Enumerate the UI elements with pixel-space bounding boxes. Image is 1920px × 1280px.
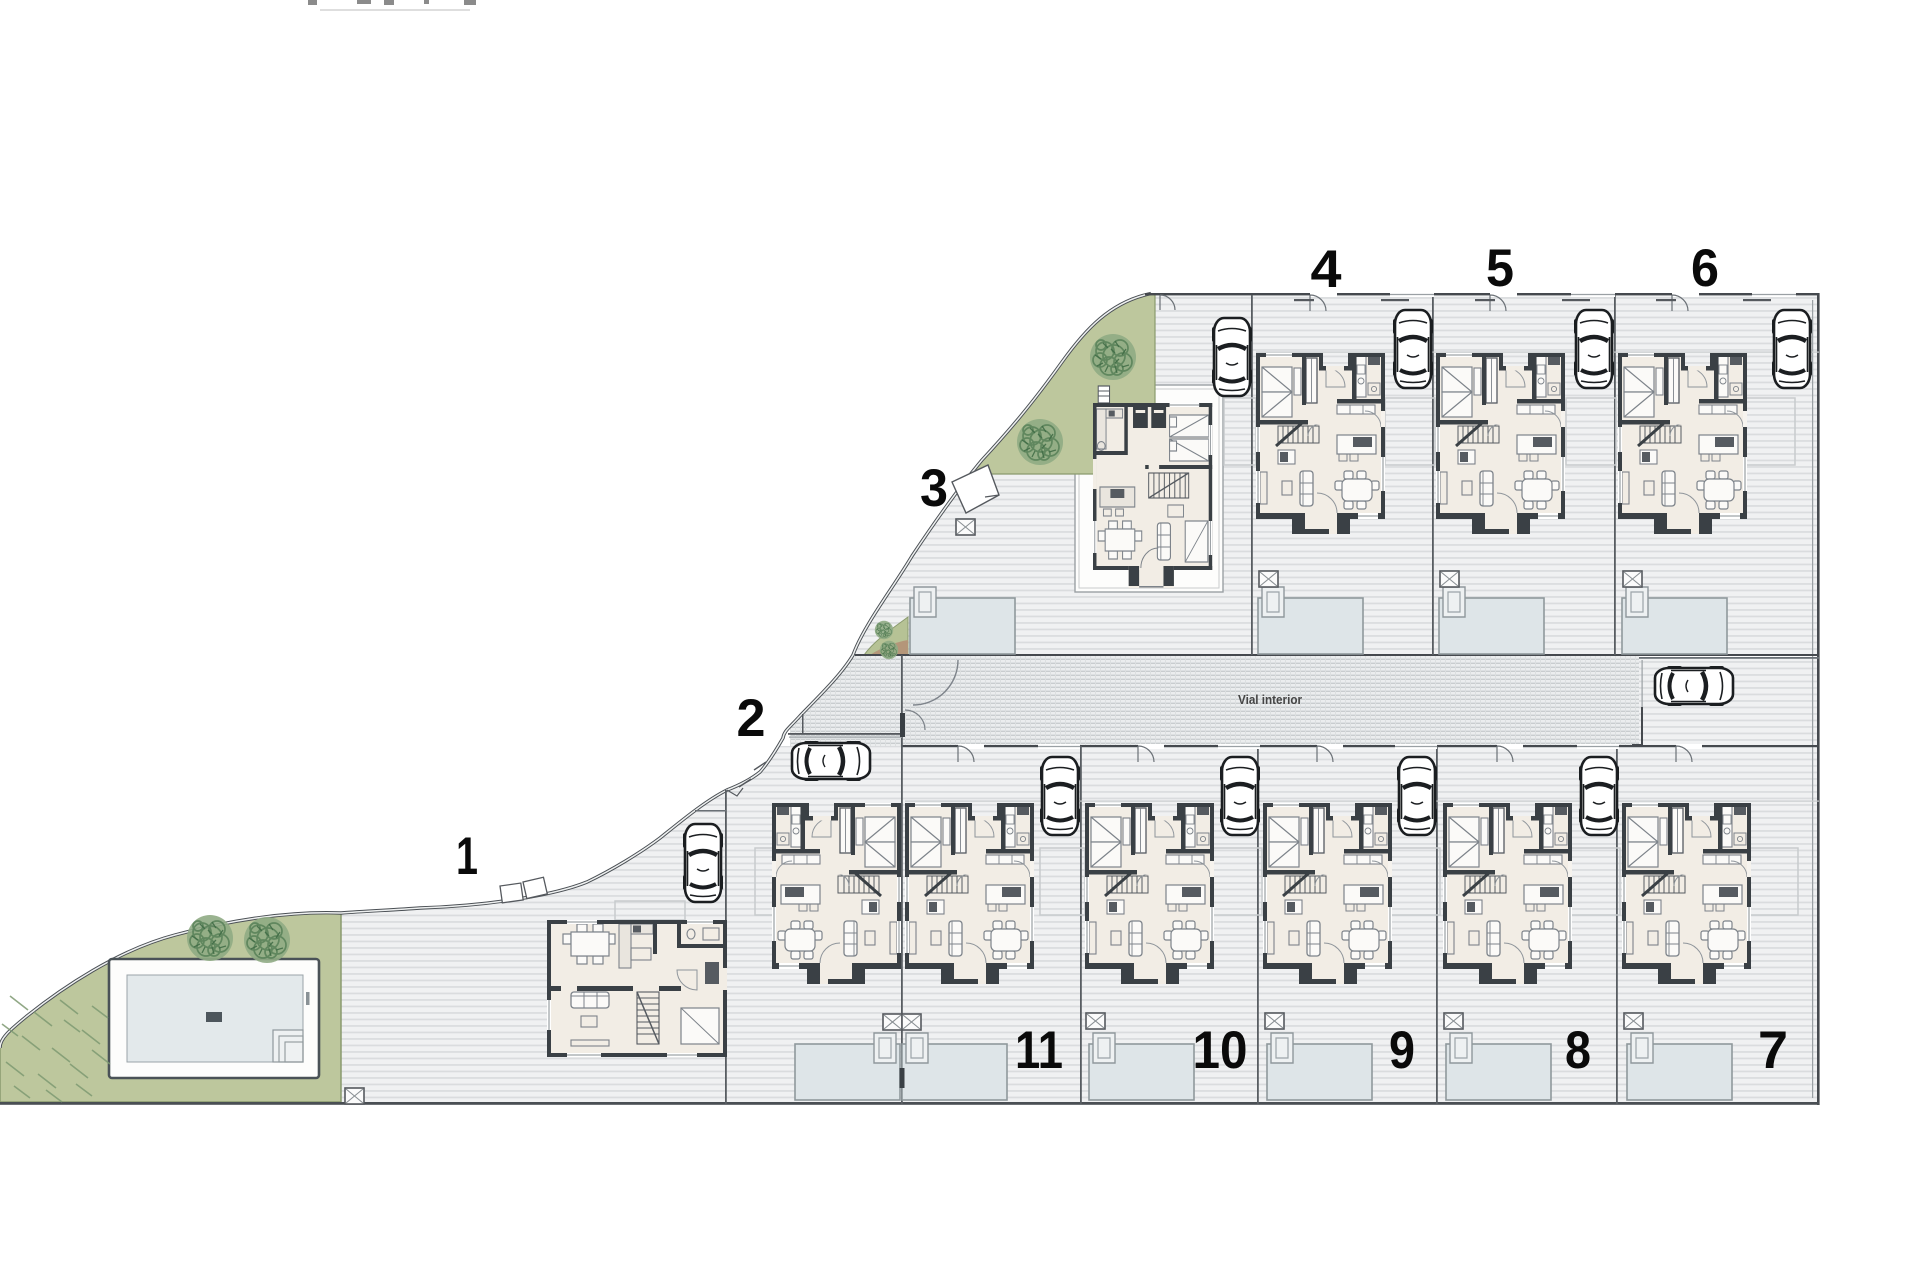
svg-text:5: 5 — [1486, 239, 1514, 298]
svg-text:8: 8 — [1565, 1021, 1591, 1080]
svg-text:6: 6 — [1691, 239, 1719, 298]
svg-text:1: 1 — [456, 827, 478, 886]
svg-text:10: 10 — [1193, 1021, 1248, 1080]
svg-text:7: 7 — [1758, 1021, 1788, 1080]
svg-text:11: 11 — [1015, 1021, 1063, 1080]
svg-text:4: 4 — [1311, 240, 1343, 299]
svg-text:2: 2 — [737, 689, 766, 748]
svg-text:9: 9 — [1389, 1021, 1415, 1080]
svg-text:3: 3 — [920, 459, 948, 518]
svg-text:Vial interior: Vial interior — [1238, 693, 1302, 707]
